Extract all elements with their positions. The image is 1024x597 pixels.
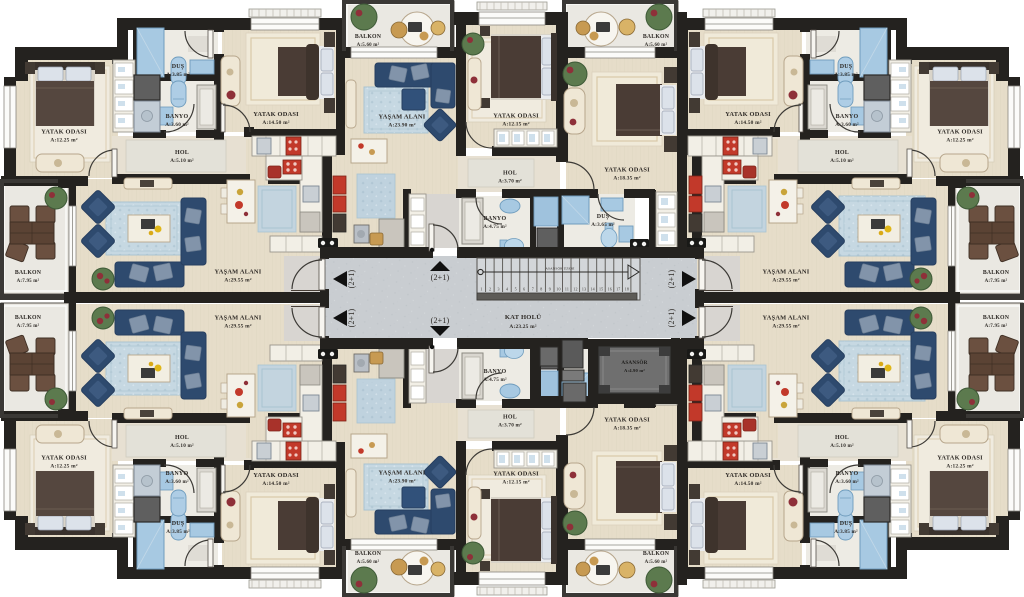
svg-text:YATAK ODASI: YATAK ODASI — [41, 454, 87, 461]
svg-text:8: 8 — [540, 287, 542, 292]
svg-text:A:3.60 m²: A:3.60 m² — [835, 479, 859, 485]
svg-text:YATAK ODASI: YATAK ODASI — [725, 111, 771, 118]
svg-text:A:29.55 m²: A:29.55 m² — [772, 278, 799, 284]
svg-text:YAŞAM ALANI: YAŞAM ALANI — [763, 268, 810, 275]
svg-text:A:3.85 m²: A:3.85 m² — [834, 529, 858, 535]
svg-text:14: 14 — [590, 287, 594, 292]
svg-text:A:4.90 m²: A:4.90 m² — [624, 368, 645, 373]
svg-text:DUŞ: DUŞ — [172, 521, 185, 527]
svg-text:YAŞAM ALANI: YAŞAM ALANI — [215, 268, 262, 275]
svg-text:A:5.10 m²: A:5.10 m² — [830, 158, 854, 164]
svg-text:7: 7 — [532, 287, 534, 292]
svg-text:A:3.60 m²: A:3.60 m² — [165, 122, 189, 128]
svg-text:DUŞ: DUŞ — [840, 521, 853, 527]
svg-text:HOL: HOL — [175, 150, 189, 156]
svg-text:A:12.15 m²: A:12.15 m² — [502, 122, 529, 128]
svg-text:4: 4 — [506, 287, 508, 292]
svg-text:HOL: HOL — [835, 435, 849, 441]
svg-text:YATAK ODASI: YATAK ODASI — [604, 416, 650, 423]
svg-text:1: 1 — [480, 287, 482, 292]
svg-text:YATAK ODASI: YATAK ODASI — [253, 472, 299, 479]
svg-text:HOL: HOL — [503, 414, 517, 420]
svg-text:9: 9 — [549, 287, 551, 292]
svg-text:KAT HOLÜ: KAT HOLÜ — [505, 314, 541, 321]
svg-text:A:5.60 m²: A:5.60 m² — [357, 42, 380, 48]
svg-text:DUŞ: DUŞ — [840, 64, 853, 70]
svg-text:A:14.50 m²: A:14.50 m² — [262, 120, 289, 126]
svg-text:A:23.90 m²: A:23.90 m² — [388, 479, 415, 485]
svg-text:YATAK ODASI: YATAK ODASI — [604, 166, 650, 173]
svg-text:BANYO: BANYO — [166, 471, 189, 477]
svg-text:(2+1): (2+1) — [667, 308, 676, 327]
svg-text:12: 12 — [573, 287, 577, 292]
svg-text:A:7.95 m²: A:7.95 m² — [17, 278, 40, 284]
svg-text:BALKON: BALKON — [15, 315, 42, 321]
svg-text:YAŞAM ALANI: YAŞAM ALANI — [763, 314, 810, 321]
svg-text:BANYO: BANYO — [166, 114, 189, 120]
svg-text:(2+1): (2+1) — [667, 269, 676, 288]
svg-text:A:23.25 m²: A:23.25 m² — [509, 324, 536, 330]
svg-text:A:3.85 m²: A:3.85 m² — [834, 72, 858, 78]
svg-text:ASANSÖR: ASANSÖR — [621, 358, 647, 366]
svg-text:A:5.10 m²: A:5.10 m² — [830, 443, 854, 449]
svg-text:5: 5 — [515, 287, 517, 292]
svg-text:BALKON: BALKON — [355, 551, 382, 557]
svg-text:A:5.60 m²: A:5.60 m² — [645, 42, 668, 48]
svg-text:YATAK ODASI: YATAK ODASI — [493, 112, 539, 119]
svg-text:(2+1): (2+1) — [347, 308, 356, 327]
svg-text:A:3.70 m²: A:3.70 m² — [498, 423, 522, 429]
svg-text:17: 17 — [616, 287, 620, 292]
svg-text:YATAK ODASI: YATAK ODASI — [937, 454, 983, 461]
svg-text:A:18.35 m²: A:18.35 m² — [613, 426, 640, 432]
svg-text:BALKON: BALKON — [15, 270, 42, 276]
svg-text:3: 3 — [497, 287, 499, 292]
svg-text:11: 11 — [565, 287, 569, 292]
svg-text:A:29.55 m²: A:29.55 m² — [224, 324, 251, 330]
svg-text:A:5.10 m²: A:5.10 m² — [170, 158, 194, 164]
svg-text:A:3.65 m²: A:3.65 m² — [591, 222, 615, 228]
svg-text:A:12.25 m²: A:12.25 m² — [946, 464, 973, 470]
svg-text:(2+1): (2+1) — [431, 316, 450, 325]
svg-text:BANYO: BANYO — [836, 114, 859, 120]
svg-text:YATAK ODASI: YATAK ODASI — [493, 470, 539, 477]
svg-text:A:14.50 m²: A:14.50 m² — [262, 481, 289, 487]
svg-text:15: 15 — [599, 287, 603, 292]
svg-text:BALKON: BALKON — [983, 315, 1010, 321]
svg-text:A:5.60 m²: A:5.60 m² — [645, 559, 668, 565]
svg-text:10: 10 — [556, 287, 560, 292]
svg-text:A:12.25 m²: A:12.25 m² — [50, 464, 77, 470]
svg-text:BALKON: BALKON — [643, 551, 670, 557]
svg-text:YATAK ODASI: YATAK ODASI — [41, 128, 87, 135]
svg-text:(2+1): (2+1) — [431, 273, 450, 282]
svg-text:A:18.35 m²: A:18.35 m² — [613, 176, 640, 182]
svg-text:6: 6 — [523, 287, 525, 292]
svg-text:YAŞAM ALANI: YAŞAM ALANI — [215, 314, 262, 321]
svg-text:A:5.60 m²: A:5.60 m² — [357, 559, 380, 565]
svg-text:A:14.50 m²: A:14.50 m² — [734, 120, 761, 126]
svg-text:A:3.60 m²: A:3.60 m² — [835, 122, 859, 128]
svg-text:(2+1): (2+1) — [347, 269, 356, 288]
svg-text:A:3.60 m²: A:3.60 m² — [165, 479, 189, 485]
svg-text:A:12.25 m²: A:12.25 m² — [50, 138, 77, 144]
svg-text:ASANSÖR ÜZERİ: ASANSÖR ÜZERİ — [545, 266, 575, 271]
svg-text:A:4.75 m²: A:4.75 m² — [483, 377, 507, 383]
svg-text:YATAK ODASI: YATAK ODASI — [725, 472, 771, 479]
svg-text:YATAK ODASI: YATAK ODASI — [253, 111, 299, 118]
svg-text:HOL: HOL — [175, 435, 189, 441]
svg-text:BANYO: BANYO — [836, 471, 859, 477]
svg-text:YAŞAM ALANI: YAŞAM ALANI — [379, 469, 426, 476]
svg-text:A:7.95 m²: A:7.95 m² — [985, 323, 1008, 329]
svg-text:A:3.85 m²: A:3.85 m² — [166, 72, 190, 78]
svg-text:A:29.55 m²: A:29.55 m² — [772, 324, 799, 330]
svg-text:2: 2 — [489, 287, 491, 292]
svg-text:13: 13 — [582, 287, 586, 292]
svg-text:A:3.70 m²: A:3.70 m² — [498, 179, 522, 185]
svg-text:A:7.95 m²: A:7.95 m² — [17, 323, 40, 329]
svg-text:A:12.15 m²: A:12.15 m² — [502, 480, 529, 486]
svg-text:DUŞ: DUŞ — [597, 214, 610, 220]
svg-text:HOL: HOL — [503, 170, 517, 176]
svg-text:DUŞ: DUŞ — [172, 64, 185, 70]
svg-text:A:5.10 m²: A:5.10 m² — [170, 443, 194, 449]
svg-text:A:29.55 m²: A:29.55 m² — [224, 278, 251, 284]
svg-text:16: 16 — [608, 287, 612, 292]
svg-text:BALKON: BALKON — [983, 270, 1010, 276]
svg-text:18: 18 — [625, 287, 629, 292]
svg-text:A:23.90 m²: A:23.90 m² — [388, 123, 415, 129]
svg-text:A:4.75 m²: A:4.75 m² — [483, 224, 507, 230]
svg-text:BALKON: BALKON — [643, 34, 670, 40]
svg-text:HOL: HOL — [835, 150, 849, 156]
svg-text:A:14.50 m²: A:14.50 m² — [734, 481, 761, 487]
svg-text:A:7.95 m²: A:7.95 m² — [985, 278, 1008, 284]
svg-text:YATAK ODASI: YATAK ODASI — [937, 128, 983, 135]
svg-text:A:3.85 m²: A:3.85 m² — [166, 529, 190, 535]
svg-text:A:12.25 m²: A:12.25 m² — [946, 138, 973, 144]
svg-text:YAŞAM ALANI: YAŞAM ALANI — [379, 113, 426, 120]
svg-text:BANYO: BANYO — [484, 369, 507, 375]
svg-text:BANYO: BANYO — [484, 216, 507, 222]
svg-text:BALKON: BALKON — [355, 34, 382, 40]
